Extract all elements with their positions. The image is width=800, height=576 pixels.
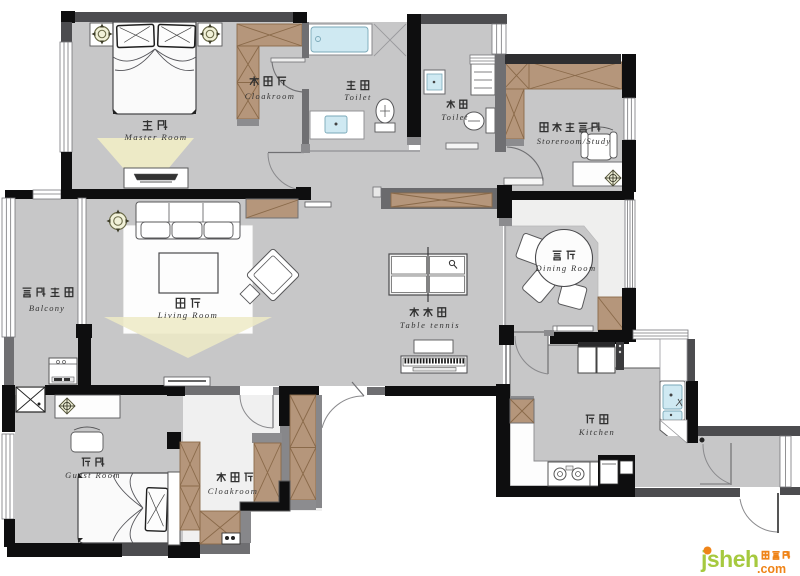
svg-text:Storeroom/Study: Storeroom/Study [537, 136, 612, 146]
svg-text:Dining Room: Dining Room [535, 263, 597, 273]
svg-text:.com: .com [757, 562, 786, 576]
svg-text:Master Room: Master Room [123, 132, 187, 142]
svg-text:Cloakroom: Cloakroom [245, 91, 296, 101]
svg-text:Balcony: Balcony [29, 303, 65, 313]
svg-text:Kitchen: Kitchen [578, 427, 615, 437]
svg-text:Toilet: Toilet [441, 112, 468, 122]
svg-text:Toilet: Toilet [344, 92, 371, 102]
svg-text:Living Room: Living Room [157, 310, 219, 320]
svg-text:Cloakroom: Cloakroom [208, 486, 259, 496]
svg-text:Guest Room: Guest Room [65, 470, 121, 480]
svg-text:Table tennis: Table tennis [400, 320, 460, 330]
